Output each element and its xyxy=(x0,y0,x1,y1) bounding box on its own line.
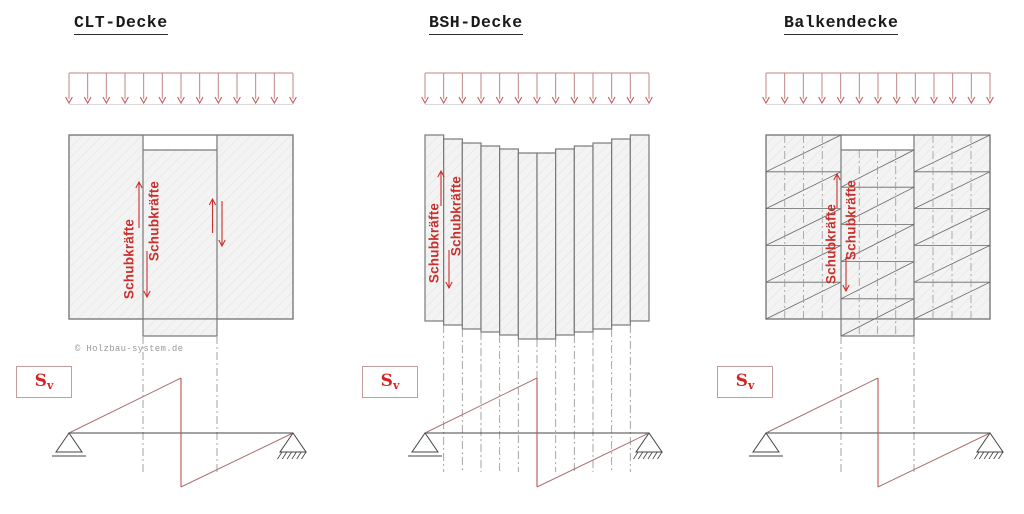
sv-badge: Sv xyxy=(16,366,72,398)
shear-forces-label: Schubkräfte xyxy=(147,181,162,261)
sv-badge: Sv xyxy=(717,366,773,398)
shear-forces-label: Schubkräfte xyxy=(824,204,839,284)
load-arrows-balken xyxy=(763,73,994,105)
shear-diagram-balken xyxy=(749,378,1003,487)
shear-forces-label: Schubkräfte xyxy=(449,176,464,256)
figure-title-clt: CLT-Decke xyxy=(74,13,168,35)
shear-forces-label: Schubkräfte xyxy=(427,203,442,283)
timber-floor-shear-diagram: CLT-Decke BSH-Decke Balkendecke Schubkrä… xyxy=(0,0,1024,514)
load-arrows-clt xyxy=(66,73,297,105)
shear-diagram-clt xyxy=(52,378,306,487)
load-arrows-bsh xyxy=(422,73,653,105)
shear-forces-label: Schubkräfte xyxy=(122,219,137,299)
shear-diagram-bsh xyxy=(408,378,662,487)
figure-title-balken: Balkendecke xyxy=(784,13,898,35)
sv-badge: Sv xyxy=(362,366,418,398)
figure-title-bsh: BSH-Decke xyxy=(429,13,523,35)
shear-forces-label: Schubkräfte xyxy=(844,180,859,260)
copyright-note: © Holzbau-system.de xyxy=(75,344,183,354)
